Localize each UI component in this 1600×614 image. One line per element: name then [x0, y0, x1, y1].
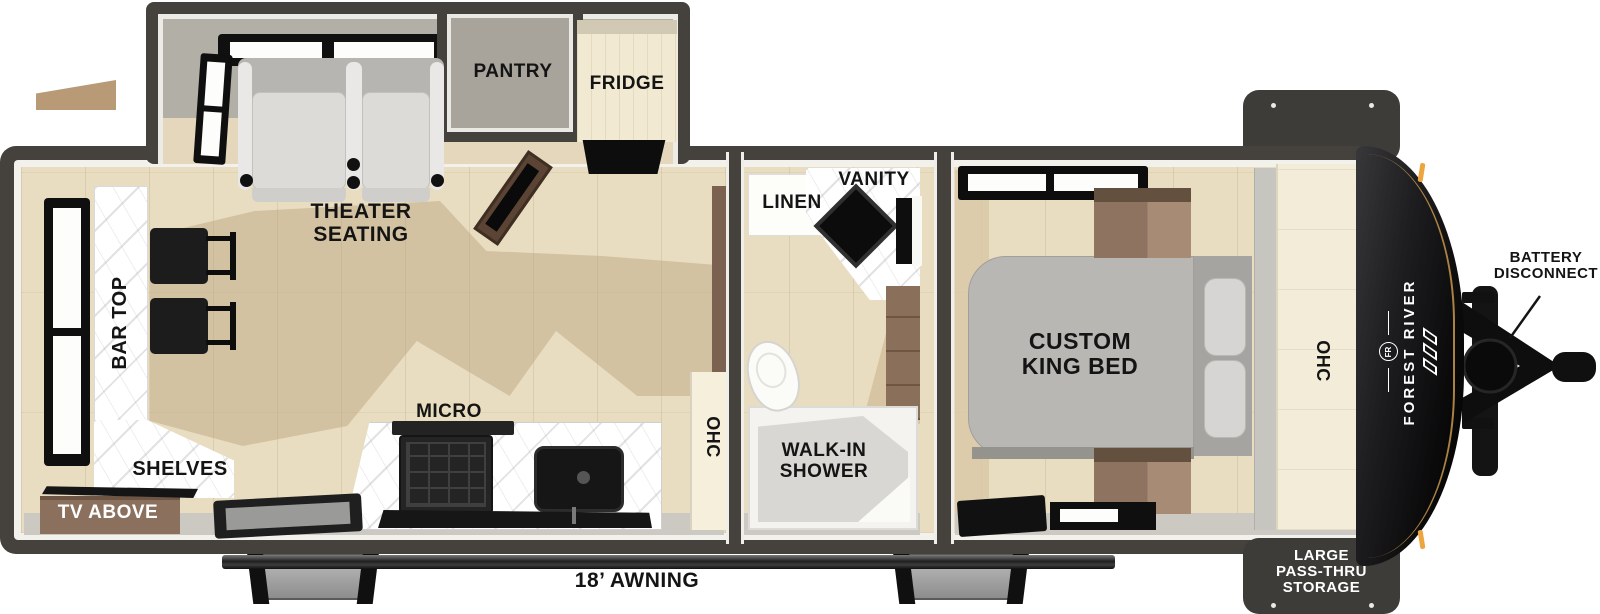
bar-top-label: BAR TOP	[110, 238, 132, 408]
window-pane	[1060, 509, 1118, 522]
bathroom-wall	[934, 152, 954, 544]
sink-drain	[577, 471, 590, 484]
theater-seat-cushion	[252, 92, 346, 190]
floorplan-diagram: 18’ AWNING THEATER SEATING PANTRY	[0, 0, 1600, 614]
pillow	[1204, 360, 1246, 438]
wardrobe	[1254, 168, 1276, 530]
medicine-cabinet-frame	[912, 196, 922, 266]
window-pane	[334, 42, 434, 58]
bedroom-door	[957, 495, 1047, 537]
battery-disconnect-label: BATTERY DISCONNECT	[1488, 250, 1600, 282]
theater-seat-cushion	[362, 92, 430, 190]
theater-armrest	[238, 62, 252, 190]
custom-king-bed-label: CUSTOM KING BED	[998, 329, 1162, 379]
vanity-label: VANITY	[826, 170, 922, 191]
stove-grate	[406, 442, 486, 507]
cupholder	[431, 174, 444, 187]
linen-label: LINEN	[742, 193, 842, 214]
awning-label: 18’ AWNING	[552, 570, 722, 593]
logo-stripe	[1423, 358, 1437, 377]
marker-light	[1418, 163, 1426, 183]
fridge-label: FRIDGE	[570, 74, 684, 95]
pillow	[1204, 278, 1246, 356]
logo-stripes-icon	[1423, 333, 1437, 372]
walk-in-shower-label: WALK-IN SHOWER	[744, 441, 904, 482]
theater-armrest	[430, 62, 444, 190]
counter-edge	[378, 510, 652, 528]
micro-label: MICRO	[399, 402, 499, 423]
bedroom-window	[1050, 502, 1156, 530]
toilet-lid	[751, 349, 791, 393]
frame-plate	[1462, 292, 1494, 303]
bathroom-wall	[726, 152, 744, 544]
cupholder	[347, 176, 360, 189]
awning-rail	[222, 555, 1115, 569]
entry-door	[213, 493, 363, 539]
stove	[399, 435, 493, 514]
marker-light	[1418, 530, 1426, 550]
bathroom-cabinet	[886, 286, 920, 420]
cupholder	[240, 174, 253, 187]
fr-medallion-icon: FR	[1379, 343, 1398, 362]
window-pane	[230, 42, 322, 58]
bedroom-ohc-label: OHC	[1312, 281, 1332, 441]
rivet-light	[1369, 103, 1374, 108]
cupholder	[347, 158, 360, 171]
microwave	[392, 421, 514, 435]
tv-above-label: TV ABOVE	[48, 503, 168, 524]
kitchen-ohc-label: OHC	[702, 357, 722, 517]
window-pane	[968, 174, 1046, 191]
door-panel	[226, 502, 351, 530]
rivet-light	[1271, 603, 1276, 608]
rivet-light	[1369, 603, 1374, 608]
shelves-label: SHELVES	[122, 459, 238, 481]
pantry-label: PANTRY	[453, 62, 573, 83]
coupler	[1552, 352, 1596, 382]
theater-seating-label: THEATER SEATING	[281, 201, 441, 246]
jack-wheel	[1464, 340, 1516, 392]
kitchen-sink	[534, 446, 624, 512]
brand-name: FOREST RIVER	[1401, 279, 1418, 426]
window-pane	[53, 336, 81, 454]
bar-stool	[150, 228, 208, 284]
faucet	[572, 507, 576, 524]
bar-stool	[150, 298, 208, 354]
tongue-hitch	[1448, 268, 1600, 488]
logo-line	[1388, 369, 1390, 393]
nightstand	[1094, 188, 1191, 258]
rear-window	[44, 198, 90, 466]
window-pane	[201, 111, 222, 156]
window-pane	[53, 208, 81, 328]
fridge-front	[580, 140, 668, 174]
logo-medallion-row: FR	[1379, 312, 1398, 393]
rivet-light	[1271, 103, 1276, 108]
battery-pointer-line	[1510, 296, 1540, 338]
window-pane	[204, 61, 225, 106]
stool-rail	[230, 302, 236, 350]
stool-rail	[230, 232, 236, 280]
pantry-shelf	[36, 80, 116, 110]
forest-river-logo: FR FOREST RIVER	[1378, 242, 1438, 462]
logo-line	[1388, 312, 1390, 336]
